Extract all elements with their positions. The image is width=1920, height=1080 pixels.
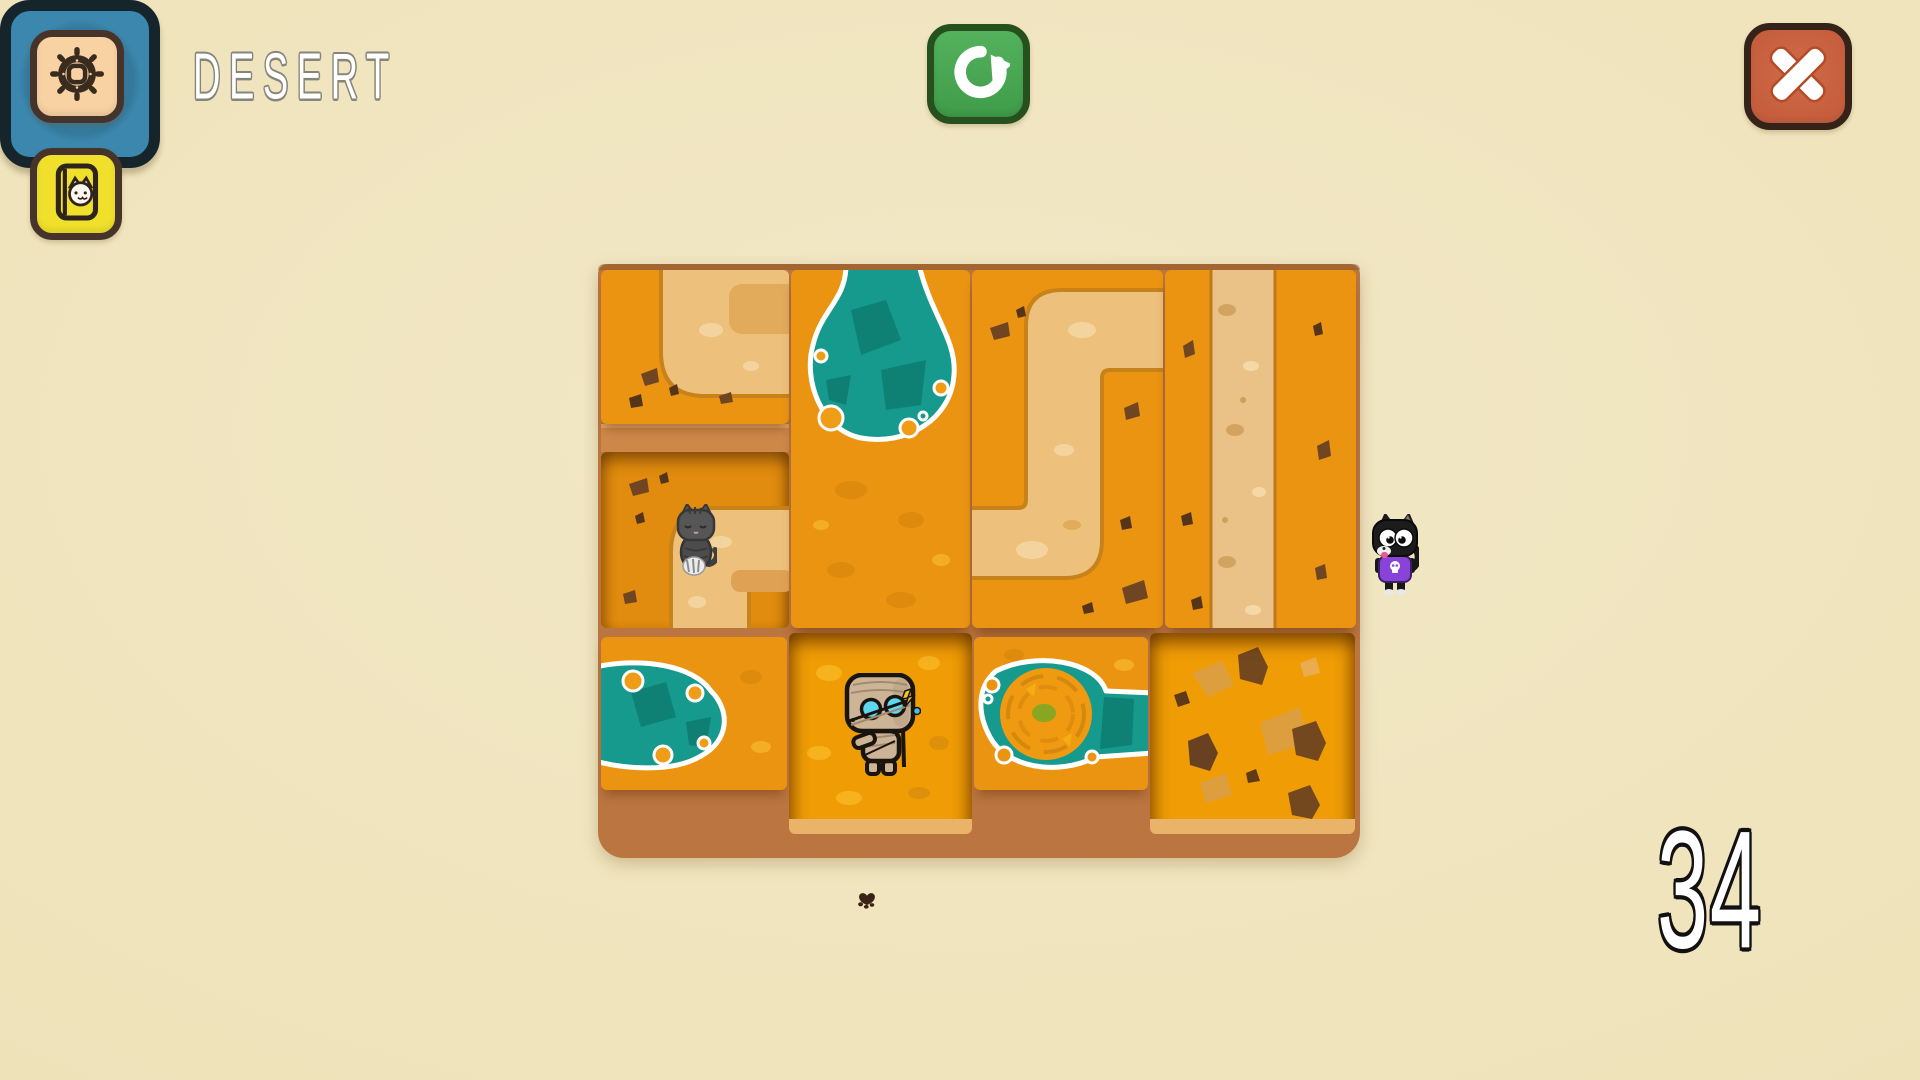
restart-arrow-icon bbox=[948, 41, 1010, 108]
black-cat-character bbox=[1371, 514, 1419, 598]
close-button[interactable] bbox=[1744, 23, 1852, 130]
pond-left-tile[interactable] bbox=[601, 637, 787, 790]
gear-icon bbox=[50, 47, 104, 106]
restart-button[interactable] bbox=[927, 24, 1030, 124]
cat-guide-button[interactable] bbox=[30, 148, 122, 240]
rocky-slot bbox=[1150, 633, 1355, 834]
tray-gap bbox=[601, 424, 789, 452]
mummy-slot bbox=[789, 633, 972, 834]
puzzle-board bbox=[598, 264, 1360, 858]
mummy-character bbox=[841, 673, 921, 777]
cat-path-corner-tile[interactable] bbox=[601, 452, 789, 628]
close-x-icon bbox=[1763, 39, 1833, 114]
whirlpool-pond-tile[interactable] bbox=[974, 637, 1148, 790]
slot-bottom-lip bbox=[1150, 819, 1355, 834]
cat-book-icon bbox=[50, 162, 102, 227]
moves-counter: 34 bbox=[1657, 794, 1763, 987]
zigzag-path-tile[interactable] bbox=[972, 270, 1163, 628]
level-title: DESERT bbox=[193, 42, 398, 115]
path-corner-tile-top-left[interactable] bbox=[601, 270, 789, 424]
slot-bottom-lip bbox=[789, 819, 972, 834]
gray-cat-character bbox=[675, 504, 717, 576]
settings-button[interactable] bbox=[30, 30, 124, 123]
oasis-pond-tile[interactable] bbox=[791, 270, 970, 628]
vertical-road-tile[interactable] bbox=[1165, 270, 1356, 628]
paw-print-icon bbox=[857, 890, 877, 909]
